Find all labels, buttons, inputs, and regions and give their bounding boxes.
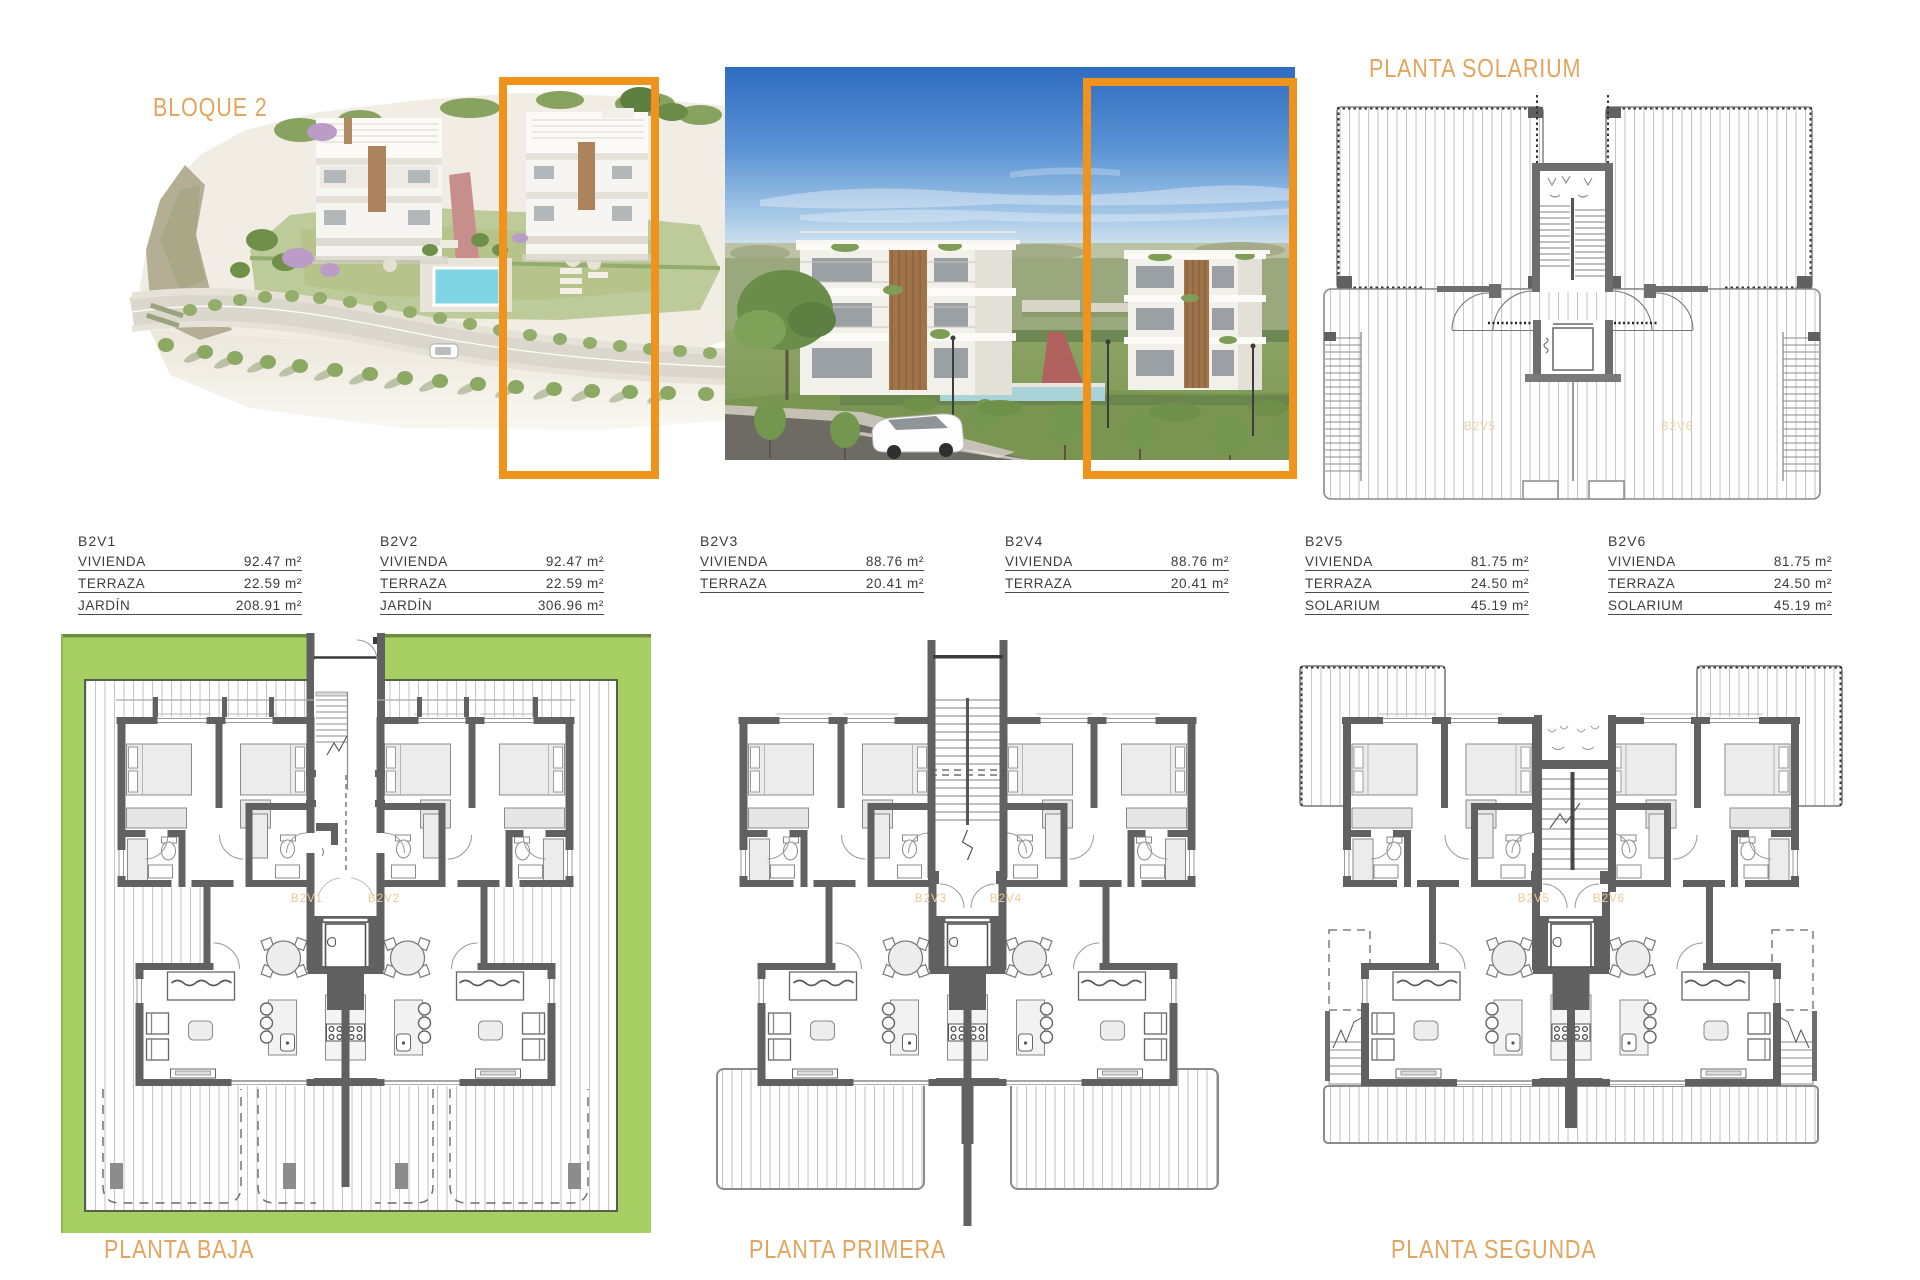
svg-text:B2V5: B2V5 [1464,421,1496,433]
svg-text:B2V6: B2V6 [1593,893,1625,905]
svg-text:B2V4: B2V4 [990,893,1022,905]
svg-text:B2V5: B2V5 [1518,893,1550,905]
svg-text:B2V6: B2V6 [1661,421,1693,433]
svg-text:B2V3: B2V3 [915,893,947,905]
svg-text:B2V1: B2V1 [291,893,323,905]
svg-text:B2V2: B2V2 [368,893,400,905]
